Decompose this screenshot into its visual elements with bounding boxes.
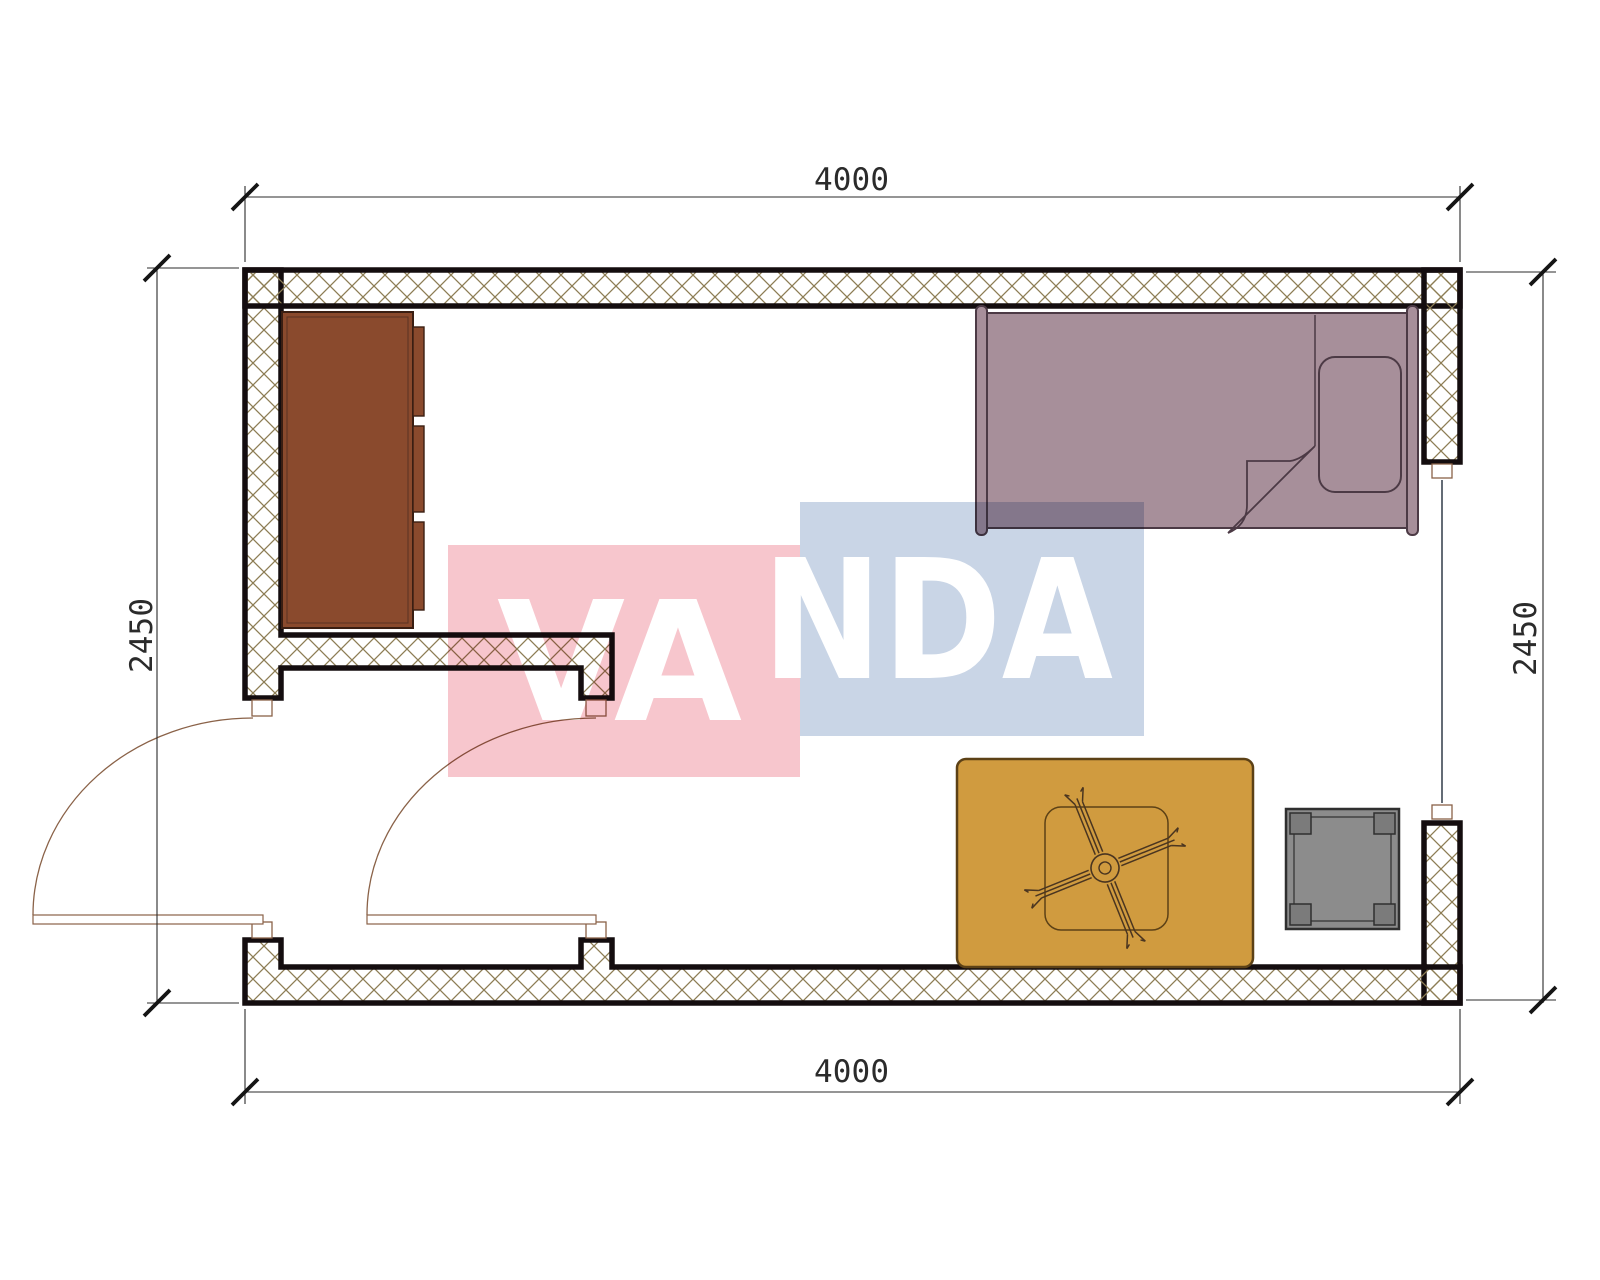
dimension-left: 2450 [124,255,239,1016]
door1-swing-arc [33,718,253,915]
watermark-text-nda: NDA [762,525,1113,718]
window-jamb-top [1432,464,1452,478]
wardrobe-body [282,312,413,628]
wall-bottom [245,940,1460,1003]
dimension-label-bottom: 4000 [814,1054,890,1090]
stool-leg [1374,904,1395,925]
door2-jamb-top [586,700,606,716]
wardrobe-door-2 [413,426,424,512]
bed-footboard [976,306,987,535]
wall-right-upper [1424,270,1460,462]
dimension-right: 2450 [1466,259,1556,1013]
door1-jamb-top [252,700,272,716]
window-jamb-bottom [1432,805,1452,819]
wall-top [245,270,1460,306]
rug-body [957,759,1253,967]
dimension-label-left: 2450 [124,597,160,673]
bed [976,306,1418,535]
door1-leaf [33,915,263,924]
dimension-label-top: 4000 [814,162,890,198]
dimension-bottom: 4000 [232,1009,1473,1105]
wardrobe-door-3 [413,522,424,610]
stool-leg [1374,813,1395,834]
bed-headboard [1407,306,1418,535]
window [1432,464,1452,819]
dimension-top: 4000 [232,162,1473,262]
floor-plan-drawing: VA NDA [0,0,1600,1280]
bed-pillow [1319,357,1401,492]
floor-plan-canvas: VA NDA [0,0,1600,1280]
stool [1286,809,1399,929]
stool-leg [1290,904,1311,925]
wardrobe-door-1 [413,327,424,416]
wardrobe [282,312,424,628]
stool-leg [1290,813,1311,834]
dimension-label-right: 2450 [1508,600,1544,676]
door-exterior [33,700,272,938]
rug [957,759,1253,976]
door2-leaf [367,915,596,924]
